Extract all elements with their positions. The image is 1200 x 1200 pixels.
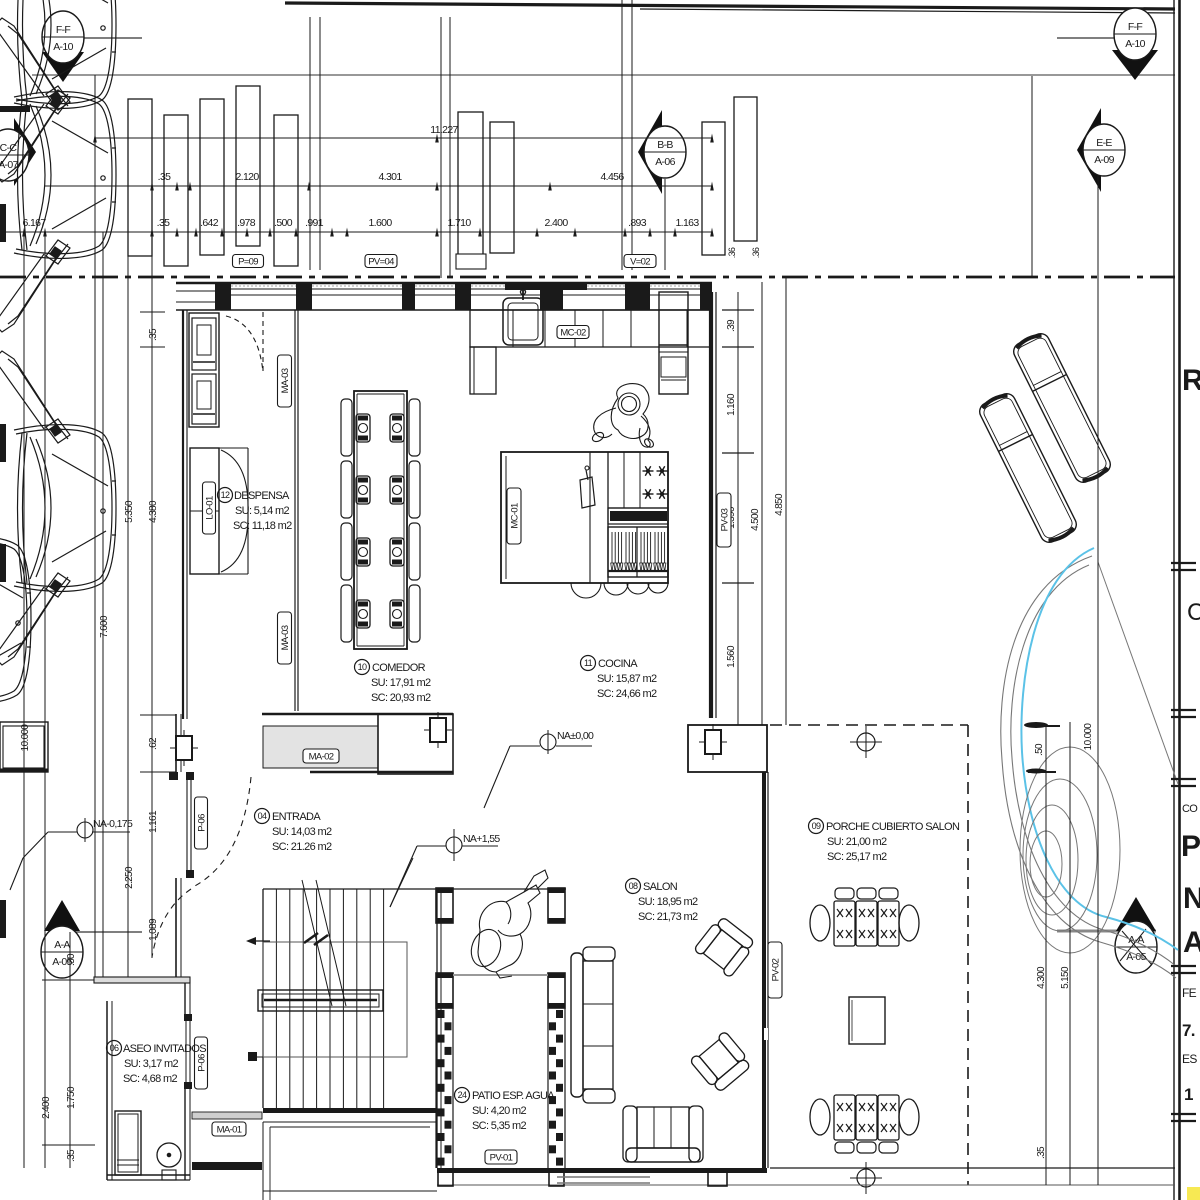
svg-text:SC: 21.26 m2: SC: 21.26 m2 <box>272 841 332 853</box>
svg-text:P: P <box>1181 830 1200 863</box>
svg-text:C: C <box>1187 599 1200 626</box>
svg-text:10: 10 <box>358 662 367 672</box>
svg-text:12: 12 <box>221 490 230 500</box>
svg-text:MC-02: MC-02 <box>560 328 586 339</box>
svg-text:CO: CO <box>1182 803 1198 815</box>
svg-text:SC: 25,17 m2: SC: 25,17 m2 <box>827 851 887 863</box>
svg-text:RO: RO <box>1182 364 1200 397</box>
svg-text:PV-03: PV-03 <box>720 508 731 531</box>
svg-text:10.000: 10.000 <box>20 724 31 752</box>
svg-text:MA-03: MA-03 <box>280 625 291 650</box>
svg-text:.35: .35 <box>158 171 171 183</box>
svg-text:.39: .39 <box>726 319 737 332</box>
svg-text:4.301: 4.301 <box>378 171 402 183</box>
svg-text:7.: 7. <box>1182 1021 1195 1040</box>
svg-text:11: 11 <box>584 658 593 668</box>
svg-text:4.850: 4.850 <box>774 493 785 516</box>
svg-text:.62: .62 <box>148 737 159 750</box>
svg-text:4.500: 4.500 <box>750 508 761 531</box>
svg-text:SC: 24,66 m2: SC: 24,66 m2 <box>597 688 657 700</box>
svg-text:.50: .50 <box>1034 743 1045 756</box>
svg-text:SC: 4,68 m2: SC: 4,68 m2 <box>123 1073 178 1085</box>
svg-text:SU: 14,03 m2: SU: 14,03 m2 <box>272 826 332 838</box>
svg-text:PV-01: PV-01 <box>490 1153 513 1164</box>
svg-text:.500: .500 <box>274 217 293 229</box>
svg-text:A-A: A-A <box>54 939 70 951</box>
svg-text:SU: 3,17 m2: SU: 3,17 m2 <box>124 1058 179 1070</box>
svg-text:C-C: C-C <box>0 142 17 154</box>
svg-text:1.710: 1.710 <box>447 217 471 229</box>
svg-text:NA-0,175: NA-0,175 <box>93 818 133 830</box>
svg-text:SU: 21,00 m2: SU: 21,00 m2 <box>827 836 887 848</box>
svg-text:1.160: 1.160 <box>726 393 737 416</box>
svg-text:SU: 17,91 m2: SU: 17,91 m2 <box>371 677 431 689</box>
svg-text:F-F: F-F <box>1128 21 1143 33</box>
svg-text:1.560: 1.560 <box>726 645 737 668</box>
svg-text:LO-01: LO-01 <box>205 496 216 520</box>
svg-text:1.750: 1.750 <box>66 1086 77 1109</box>
svg-text:06: 06 <box>110 1043 119 1053</box>
svg-text:PV-02: PV-02 <box>771 958 782 981</box>
svg-text:SC: 5,35 m2: SC: 5,35 m2 <box>472 1120 527 1132</box>
svg-text:11.227: 11.227 <box>430 124 458 136</box>
svg-text:2.250: 2.250 <box>124 866 135 889</box>
svg-text:.36: .36 <box>727 247 737 258</box>
svg-text:DESPENSA: DESPENSA <box>234 490 290 502</box>
svg-text:P=09: P=09 <box>238 257 258 268</box>
svg-text:A-10: A-10 <box>53 41 73 53</box>
svg-text:4.300: 4.300 <box>1036 966 1047 989</box>
svg-text:.991: .991 <box>305 217 324 229</box>
svg-text:ASEO INVITADOS: ASEO INVITADOS <box>123 1043 206 1055</box>
svg-text:5.150: 5.150 <box>1060 966 1071 989</box>
svg-text:08: 08 <box>629 881 638 891</box>
svg-text:MA-02: MA-02 <box>309 752 334 763</box>
svg-text:E-E: E-E <box>1096 137 1112 149</box>
svg-text:N: N <box>1183 882 1200 915</box>
svg-text:ENTRADA: ENTRADA <box>272 811 321 823</box>
svg-text:1: 1 <box>1184 1085 1193 1104</box>
svg-text:PORCHE CUBIERTO SALON: PORCHE CUBIERTO SALON <box>826 821 960 833</box>
svg-text:09: 09 <box>812 821 821 831</box>
svg-text:SU: 18,95 m2: SU: 18,95 m2 <box>638 896 698 908</box>
svg-text:A-06: A-06 <box>655 156 675 168</box>
svg-text:A-10: A-10 <box>1125 38 1145 50</box>
svg-text:.36: .36 <box>751 247 761 258</box>
svg-text:2.400: 2.400 <box>41 1096 52 1119</box>
svg-text:SC: 20,93 m2: SC: 20,93 m2 <box>371 692 431 704</box>
svg-text:NA±0,00: NA±0,00 <box>557 730 594 742</box>
svg-text:4.456: 4.456 <box>600 171 624 183</box>
svg-text:PV=04: PV=04 <box>368 257 394 268</box>
svg-text:SALON: SALON <box>643 881 678 893</box>
svg-text:.35: .35 <box>1036 1146 1047 1159</box>
svg-text:5.350: 5.350 <box>124 500 135 523</box>
svg-text:4.380: 4.380 <box>148 500 159 523</box>
svg-text:2.400: 2.400 <box>544 217 568 229</box>
svg-text:A: A <box>1183 926 1200 959</box>
svg-text:FE: FE <box>1182 986 1197 1000</box>
svg-text:A-09: A-09 <box>1094 154 1114 166</box>
svg-text:1.163: 1.163 <box>675 217 699 229</box>
svg-text:COCINA: COCINA <box>598 658 638 670</box>
svg-text:COMEDOR: COMEDOR <box>372 662 426 674</box>
svg-text:2.120: 2.120 <box>235 171 259 183</box>
svg-text:F-F: F-F <box>56 24 71 36</box>
svg-text:A-05: A-05 <box>1126 951 1146 963</box>
svg-text:P-06: P-06 <box>197 814 208 832</box>
svg-text:B-B: B-B <box>657 139 673 151</box>
svg-text:7.600: 7.600 <box>99 615 110 638</box>
svg-text:1.600: 1.600 <box>368 217 392 229</box>
svg-text:10.000: 10.000 <box>1083 723 1094 751</box>
svg-text:24: 24 <box>458 1090 467 1100</box>
svg-text:04: 04 <box>258 811 267 821</box>
svg-text:P-06: P-06 <box>197 1054 208 1072</box>
svg-text:.30: .30 <box>66 953 77 966</box>
svg-text:MA-01: MA-01 <box>217 1125 242 1136</box>
svg-text:ES: ES <box>1182 1052 1197 1066</box>
svg-text:SU: 15,87 m2: SU: 15,87 m2 <box>597 673 657 685</box>
svg-text:PATIO ESP. AGUA: PATIO ESP. AGUA <box>472 1090 555 1102</box>
svg-text:.642: .642 <box>200 217 219 229</box>
svg-text:.978: .978 <box>237 217 256 229</box>
svg-text:.35: .35 <box>148 328 159 341</box>
svg-text:SC: 11,18 m2: SC: 11,18 m2 <box>233 520 292 532</box>
svg-text:MC-01: MC-01 <box>510 503 521 529</box>
svg-text:SU: 5,14 m2: SU: 5,14 m2 <box>235 505 290 517</box>
svg-text:.35: .35 <box>157 217 170 229</box>
svg-text:.35: .35 <box>66 1149 77 1162</box>
svg-text:1.161: 1.161 <box>148 810 159 833</box>
svg-text:SC: 21,73 m2: SC: 21,73 m2 <box>638 911 698 923</box>
svg-text:SU: 4,20 m2: SU: 4,20 m2 <box>472 1105 527 1117</box>
svg-text:V=02: V=02 <box>630 257 650 268</box>
svg-text:1.089: 1.089 <box>148 918 159 941</box>
svg-text:NA+1,55: NA+1,55 <box>463 833 500 845</box>
svg-text:MA-03: MA-03 <box>280 368 291 393</box>
svg-text:.893: .893 <box>628 217 647 229</box>
